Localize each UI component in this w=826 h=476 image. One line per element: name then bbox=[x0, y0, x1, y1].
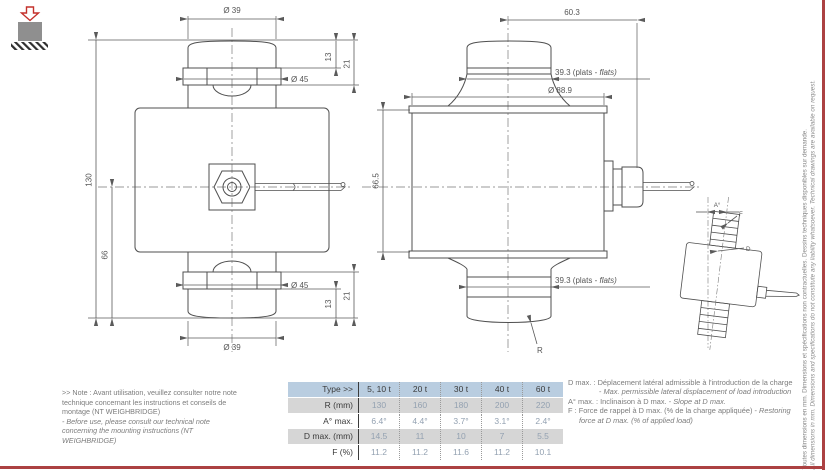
cell-value: 11.2 bbox=[482, 445, 523, 461]
dim-label-130: 130 bbox=[85, 173, 94, 187]
cell-value: 11 bbox=[400, 429, 441, 445]
cell-value: 220 bbox=[523, 397, 564, 413]
legend-notes: D max. : Déplacement latéral admissible … bbox=[568, 378, 794, 425]
dim-label-radius: R bbox=[537, 346, 543, 355]
legend-note-a-max: A° max. : Inclinaison à D max. - Slope a… bbox=[568, 397, 794, 406]
cell-value: 4.4° bbox=[400, 413, 441, 429]
side-view-drawing: 60.3 39.3 (plats - flats) Ø 88.9 66.5 39… bbox=[362, 8, 702, 355]
dim-label-flats-top: 39.3 (plats - flats) bbox=[555, 68, 617, 77]
cell-value: 2.4° bbox=[523, 413, 564, 429]
mounting-note-en: - Before use, please consult our technic… bbox=[62, 417, 210, 445]
dim-label-dia88-9: Ø 88.9 bbox=[548, 86, 573, 95]
cell-value: 3.1° bbox=[482, 413, 523, 429]
dim-label-13-top: 13 bbox=[324, 52, 333, 61]
cell-value: 130 bbox=[359, 397, 400, 413]
mounting-note: >> Note : Avant utilisation, veuillez co… bbox=[62, 388, 244, 445]
page-border-bottom bbox=[0, 466, 823, 469]
technical-drawing: Ø 39 13 21 Ø 45 130 66 Ø 45 21 13 bbox=[0, 0, 826, 380]
legend-note-f: F : Force de rappel à D max. (% de la ch… bbox=[568, 406, 794, 425]
dim-label-displacement: D bbox=[746, 246, 751, 253]
dim-label-dia39-bottom: Ø 39 bbox=[223, 343, 241, 352]
mounting-note-fr: >> Note : Avant utilisation, veuillez co… bbox=[62, 388, 237, 416]
legend-text-fr: Inclinaison à D max. - bbox=[600, 397, 673, 406]
legend-text-en: Slope at D max. bbox=[673, 397, 726, 406]
cell-value: 5.5 bbox=[523, 429, 564, 445]
legend-term: A° max. : bbox=[568, 397, 598, 406]
legend-term: D max. : bbox=[568, 378, 596, 387]
col-header-60t: 60 t bbox=[523, 382, 564, 397]
row-label: F (%) bbox=[288, 445, 359, 461]
tilted-view-drawing: A° F D bbox=[674, 193, 810, 360]
row-label: A° max. bbox=[288, 413, 359, 429]
legend-term: F : bbox=[568, 406, 577, 415]
dim-label-21-bottom: 21 bbox=[343, 291, 352, 300]
dim-label-flats-bottom: 39.3 (plats - flats) bbox=[555, 276, 617, 285]
cell-value: 14.5 bbox=[359, 429, 400, 445]
dim-label-66: 66 bbox=[101, 250, 110, 259]
col-header-40t: 40 t bbox=[482, 382, 523, 397]
compression-direction-icon bbox=[11, 7, 48, 50]
dim-label-angle: A° bbox=[714, 202, 721, 209]
front-view-drawing: Ø 39 13 21 Ø 45 130 66 Ø 45 21 13 bbox=[85, 6, 360, 352]
table-row-r: R (mm) 130 160 180 200 220 bbox=[288, 397, 563, 413]
table-header-row: Type >> 5, 10 t 20 t 30 t 40 t 60 t bbox=[288, 382, 563, 397]
page-border-right bbox=[822, 0, 825, 470]
col-header-type: Type >> bbox=[288, 382, 359, 397]
cell-value: 11.2 bbox=[400, 445, 441, 461]
dim-label-13-bottom: 13 bbox=[324, 299, 333, 308]
table-row-a-max: A° max. 6.4° 4.4° 3.7° 3.1° 2.4° bbox=[288, 413, 563, 429]
cell-value: 11.6 bbox=[441, 445, 482, 461]
cell-value: 180 bbox=[441, 397, 482, 413]
dim-label-dia39-top: Ø 39 bbox=[223, 6, 241, 15]
table-row-f: F (%) 11.2 11.2 11.6 11.2 10.1 bbox=[288, 445, 563, 461]
dim-label-21-top: 21 bbox=[343, 59, 352, 68]
down-arrow-icon bbox=[22, 7, 39, 21]
dim-label-66-5: 66.5 bbox=[372, 173, 381, 189]
col-header-20t: 20 t bbox=[400, 382, 441, 397]
cell-value: 160 bbox=[400, 397, 441, 413]
dim-label-force: F bbox=[739, 211, 743, 218]
legend-note-d-max: D max. : Déplacement latéral admissible … bbox=[568, 378, 794, 397]
cell-value: 200 bbox=[482, 397, 523, 413]
col-header-5-10t: 5, 10 t bbox=[359, 382, 400, 397]
legend-text-en: Max. permissible lateral displacement of… bbox=[604, 387, 792, 396]
margin-note: Toutes dimensions en mm. Dimensions et s… bbox=[802, 4, 819, 470]
dim-label-dia45-top: Ø 45 bbox=[291, 75, 309, 84]
margin-note-fr: Toutes dimensions en mm. Dimensions et s… bbox=[802, 129, 809, 470]
ground-hatch bbox=[11, 42, 48, 50]
cell-value: 6.4° bbox=[359, 413, 400, 429]
cell-value: 11.2 bbox=[359, 445, 400, 461]
load-block bbox=[18, 22, 42, 41]
cell-value: 10.1 bbox=[523, 445, 564, 461]
margin-note-en: All dimensions in mm. Dimensions and spe… bbox=[810, 4, 818, 470]
table-row-d-max: D max. (mm) 14.5 11 10 7 5.5 bbox=[288, 429, 563, 445]
legend-text-fr: Force de rappel à D max. (% de la charge… bbox=[579, 406, 759, 415]
spec-table: Type >> 5, 10 t 20 t 30 t 40 t 60 t R (m… bbox=[288, 382, 563, 461]
datasheet-page: Ø 39 13 21 Ø 45 130 66 Ø 45 21 13 bbox=[0, 0, 826, 476]
dim-label-60-3: 60.3 bbox=[564, 8, 580, 17]
row-label: R (mm) bbox=[288, 397, 359, 413]
cell-value: 7 bbox=[482, 429, 523, 445]
cell-value: 3.7° bbox=[441, 413, 482, 429]
cell-value: 10 bbox=[441, 429, 482, 445]
row-label: D max. (mm) bbox=[288, 429, 359, 445]
col-header-30t: 30 t bbox=[441, 382, 482, 397]
